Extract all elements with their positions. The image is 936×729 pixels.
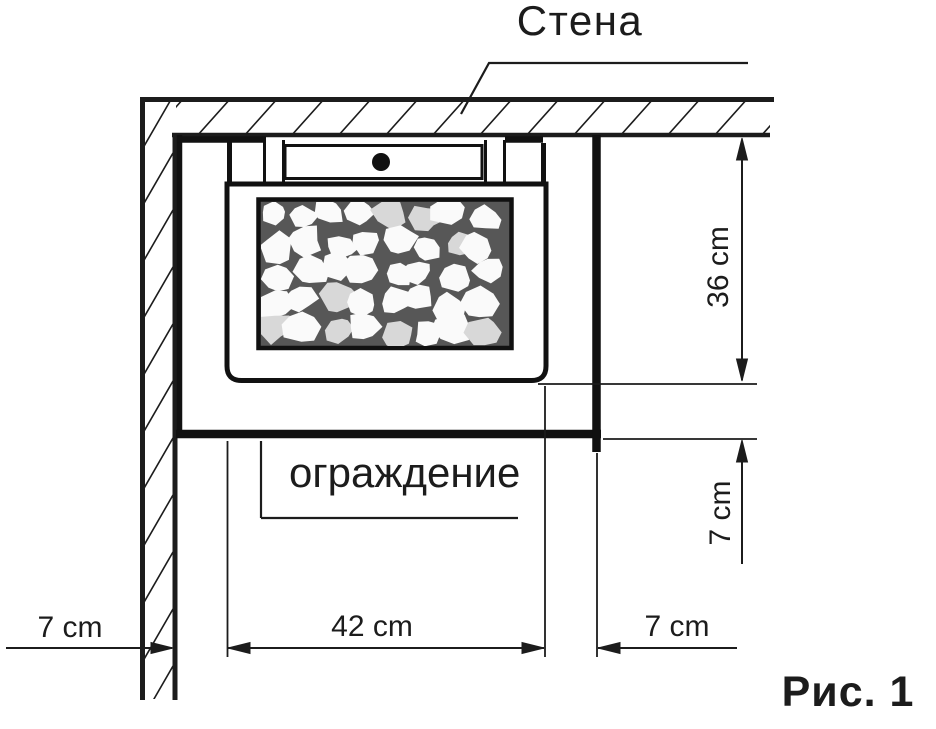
dim-42cm-line [228, 643, 544, 654]
arrow-up-icon [737, 440, 748, 462]
wall-hatch-left [143, 96, 173, 718]
dim-front-7cm-label: 7 cm [706, 480, 736, 545]
dim-right-7cm-label: 7 cm [644, 612, 709, 642]
wall-hatch-top [150, 98, 842, 136]
dim-front-7cm-line [737, 440, 748, 564]
arrow-left-icon [228, 643, 250, 654]
wall-label: Стена [517, 0, 644, 42]
guard-label: ограждение [289, 452, 520, 494]
dim-36cm-label: 36 cm [704, 226, 734, 308]
arrow-up-icon [737, 138, 748, 160]
arrow-right-icon [151, 643, 173, 654]
arrow-right-icon [522, 643, 544, 654]
arrow-down-icon [737, 359, 748, 381]
dim-right-7cm-line [598, 643, 737, 654]
heater [227, 140, 546, 381]
dim-42cm-label: 42 cm [331, 612, 413, 642]
mounting-hole [372, 153, 390, 171]
arrow-left-icon [598, 643, 620, 654]
dim-left-7cm-label: 7 cm [37, 613, 102, 643]
figure-canvas: Стена ограждение 7 cm 42 cm 7 cm 36 cm 7… [0, 0, 936, 729]
dim-36cm-line [737, 138, 748, 381]
figure-caption: Рис. 1 [782, 671, 915, 714]
wall-leader-line [461, 63, 748, 114]
installation-diagram [0, 0, 936, 729]
